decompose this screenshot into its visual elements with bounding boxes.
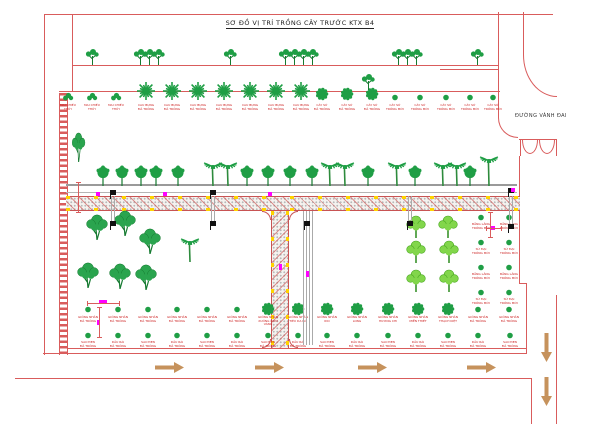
right-road-edge <box>556 295 557 424</box>
plant-label: CAU BỤNGĐÃ TRỒNG <box>211 104 237 111</box>
magenta-marker <box>306 271 309 277</box>
gate-arch-1 <box>522 140 538 154</box>
small-tree-tree-icon <box>304 48 321 65</box>
plant-label: BẰNG LĂNGTRỒNG MỚI <box>496 273 522 280</box>
star-tree-icon <box>214 81 234 101</box>
round-tree-icon <box>170 165 186 186</box>
dimension-line <box>486 228 501 229</box>
magenta-marker <box>96 192 100 196</box>
dimension-line <box>87 303 119 304</box>
plant-label: CÂY SỨTRỒNG MỚI <box>433 104 459 111</box>
plant-label: CAU BỤNGĐÃ TRỒNG <box>237 104 263 111</box>
traffic-arrow-right <box>255 362 285 373</box>
plant-label: GIỐNG NHÃNHƯƠNG CHI <box>375 316 401 323</box>
dimension-line <box>99 307 100 337</box>
inner-vline <box>72 14 73 92</box>
plant-dot-icon <box>295 332 302 339</box>
plant-dot-icon <box>354 332 361 339</box>
plant-label: CAU BỤNGĐÃ TRỒNG <box>133 104 159 111</box>
plant-label: CAU BỤNGĐÃ TRỒNG <box>263 104 289 111</box>
plant-dot-icon <box>324 332 331 339</box>
plant-label: SỨ ĐẠITRỒNG MỚI <box>468 248 494 255</box>
plant-label: SỨ ĐẠITRỒNG MỚI <box>496 248 522 255</box>
plant-dot-icon <box>507 332 514 339</box>
dim-tick <box>488 212 493 213</box>
striped-wall <box>59 93 68 355</box>
plant-label: GIỐNG NHÃNĐÃ TRỒNG <box>496 316 522 323</box>
right-border-lower <box>526 283 527 353</box>
upper-hline <box>72 65 498 66</box>
dim-tick <box>486 226 487 231</box>
plant-label: DẦU RÁIĐÃ TRỒNG <box>285 341 311 348</box>
road-label: ĐƯỜNG VÀNH ĐAI <box>515 113 567 119</box>
post-line <box>111 196 115 221</box>
plant-label: GIỐNG NHÃNTIÊU DA BÒ <box>285 316 311 323</box>
plant-dot-icon <box>506 239 513 246</box>
plant-dot-icon <box>490 94 497 101</box>
lgreen-tree-icon <box>406 268 427 292</box>
small-tree-tree-icon <box>360 73 377 90</box>
fluffy-tree-icon <box>340 87 354 101</box>
plant-label: GIỐNG NHÃNLONG <box>344 316 370 323</box>
plant-dot-icon <box>506 306 513 313</box>
round-tree-icon <box>282 165 298 186</box>
plant-label: BẰNG LĂNGTRỒNG MỚI <box>468 273 494 280</box>
palm-tree-icon <box>386 160 408 186</box>
lgreen-tree-icon <box>406 239 427 263</box>
bush-tree-icon <box>63 92 74 101</box>
plant-label: GIỐNG NHÃNTHẠCH KIỆT <box>435 316 461 323</box>
plant-label: GIỐNG NHÃNĐÃ TRỒNG <box>135 316 161 323</box>
curve-b <box>523 55 557 97</box>
plant-dot-icon <box>417 94 424 101</box>
star-tree-icon <box>162 81 182 101</box>
palm-tree-icon <box>179 236 201 262</box>
dim-tick <box>97 307 102 308</box>
small-tree-tree-icon <box>84 48 101 65</box>
dim-tick <box>76 182 81 183</box>
plant-dot-icon <box>265 332 272 339</box>
plant-dot-icon <box>475 332 482 339</box>
dim-tick <box>76 212 81 213</box>
plant-dot-icon <box>467 94 474 101</box>
traffic-arrow-right <box>155 362 185 373</box>
small-tree-tree-icon <box>222 48 239 65</box>
dimension-line <box>78 182 79 212</box>
gate-post-left <box>520 139 521 156</box>
plant-label: SAO ĐENĐÃ TRỒNG <box>194 341 220 348</box>
big-tree-icon <box>133 262 159 290</box>
right-vline-b <box>523 12 524 55</box>
fluffy-tree-icon <box>381 302 395 316</box>
plant-label: GIỐNG NHÃNXUỒNG CƠM VÀNG <box>255 316 281 327</box>
fluffy-tree-icon <box>320 302 334 316</box>
plant-label: MAI CHIẾUTHỦY <box>55 104 81 111</box>
plant-dot-icon <box>85 306 92 313</box>
small-tree-tree-icon <box>408 48 425 65</box>
plant-dot-icon <box>475 306 482 313</box>
right-border-upper <box>519 156 520 283</box>
palm-tree-icon <box>217 160 239 186</box>
plant-dot-icon <box>415 332 422 339</box>
plant-dot-icon <box>445 332 452 339</box>
plant-dot-icon <box>478 289 485 296</box>
lamp-post-icon <box>210 221 216 226</box>
gate-arch-2 <box>539 140 555 154</box>
lamp-post-icon <box>304 221 310 226</box>
traffic-arrow-down <box>541 333 552 363</box>
plant-dot-icon <box>85 332 92 339</box>
curve-a <box>498 118 518 138</box>
yellow-dash-left <box>271 211 274 348</box>
plant-label: CÂY SỨTRỒNG MỚI <box>480 104 506 111</box>
plant-label: SỨ ĐẠITRỒNG MỚI <box>468 298 494 305</box>
round-tree-icon <box>95 165 111 186</box>
lgreen-tree-icon <box>439 239 460 263</box>
plant-label: CÂY SỨTRỒNG MỚI <box>382 104 408 111</box>
fluffy-tree-icon <box>261 302 275 316</box>
round-tree-icon <box>407 165 423 186</box>
border-top <box>44 14 553 15</box>
dim-tick <box>87 301 88 306</box>
post-line <box>211 196 215 221</box>
round-tree-icon <box>114 165 130 186</box>
small-tree-tree-icon <box>150 48 167 65</box>
fluffy-tree-icon <box>315 87 329 101</box>
border-left <box>44 14 45 355</box>
plant-dot-icon <box>145 306 152 313</box>
star-tree-icon <box>188 81 208 101</box>
dimension-line <box>490 212 491 237</box>
star-tree-icon <box>291 81 311 101</box>
gate-post-right <box>556 139 557 156</box>
tallpalm-tree-icon <box>478 154 500 186</box>
star-tree-icon <box>240 81 260 101</box>
bush-tree-icon <box>111 92 122 101</box>
magenta-marker <box>163 192 167 196</box>
traffic-arrow-right <box>358 362 388 373</box>
plant-dot-icon <box>478 264 485 271</box>
big-tree-icon <box>107 261 133 289</box>
palm-tree-icon <box>446 160 468 186</box>
plant-dot-icon <box>385 332 392 339</box>
plant-dot-icon <box>115 332 122 339</box>
tall-tree-icon <box>71 130 86 162</box>
dim-tick <box>119 301 120 306</box>
magenta-marker <box>511 188 515 192</box>
fluffy-tree-icon <box>411 302 425 316</box>
road-edge-1 <box>43 353 527 354</box>
plant-label: DẦU RÁIĐÃ TRỒNG <box>164 341 190 348</box>
post-line <box>303 211 307 345</box>
plant-dot-icon <box>234 306 241 313</box>
main-road-line-2 <box>66 192 517 193</box>
palm-tree-icon <box>334 160 356 186</box>
round-tree-icon <box>260 165 276 186</box>
dim-tick <box>488 237 493 238</box>
plant-label: DẦU RÁIĐÃ TRỒNG <box>105 341 131 348</box>
plant-dot-icon <box>204 306 211 313</box>
plant-label: SỨ ĐẠITRỒNG MỚI <box>496 298 522 305</box>
lamp-post-icon <box>110 221 116 226</box>
plant-label: SAO ĐENĐÃ TRỒNG <box>497 341 523 348</box>
plant-dot-icon <box>392 94 399 101</box>
plant-dot-icon <box>174 332 181 339</box>
plant-label: SAO ĐENĐÃ TRỒNG <box>314 341 340 348</box>
star-tree-icon <box>266 81 286 101</box>
plant-label: GIỐNG NHÃNĐÃ TRỒNG <box>164 316 190 323</box>
plant-label: GIỐNG NHÃNĐÃ TRỒNG <box>105 316 131 323</box>
plant-label: CÂY SỨĐÃ TRỒNG <box>309 104 335 111</box>
lamp-post-icon <box>508 224 514 229</box>
magenta-marker <box>268 192 272 196</box>
plant-dot-icon <box>506 289 513 296</box>
plant-label: GIỐNG NHÃNMIỀN THIẾT <box>405 316 431 323</box>
road-edge-2 <box>15 378 532 379</box>
small-tree-tree-icon <box>469 48 486 65</box>
big-tree-icon <box>84 212 110 240</box>
plant-dot-icon <box>174 306 181 313</box>
plant-dot-icon <box>443 94 450 101</box>
plant-label: DẦU RÁIĐÃ TRỒNG <box>344 341 370 348</box>
plant-label: SAO ĐENĐÃ TRỒNG <box>255 341 281 348</box>
yellow-dash-right <box>286 211 289 348</box>
dim-tick <box>501 226 502 231</box>
upper-hline-2 <box>440 69 498 70</box>
lgreen-tree-icon <box>439 268 460 292</box>
plant-dot-icon <box>145 332 152 339</box>
lgreen-tree-icon <box>438 214 459 238</box>
lamp-post-icon <box>210 190 216 195</box>
traffic-arrow-right <box>467 362 497 373</box>
plant-label: DẦU RÁIĐÃ TRỒNG <box>224 341 250 348</box>
magenta-marker <box>279 264 282 270</box>
round-tree-icon <box>148 165 164 186</box>
plant-dot-icon <box>204 332 211 339</box>
plant-label: SAO ĐENĐÃ TRỒNG <box>75 341 101 348</box>
plant-label: GIỐNG NHÃNIDO <box>314 316 340 323</box>
fluffy-tree-icon <box>350 302 364 316</box>
plant-dot-icon <box>234 332 241 339</box>
lamp-post-icon <box>110 190 116 195</box>
plant-label: CÂY SỨĐÃ TRỒNG <box>334 104 360 111</box>
lamp-post-icon <box>407 221 413 226</box>
fluffy-tree-icon <box>441 302 455 316</box>
plant-label: SAO ĐENĐÃ TRỒNG <box>375 341 401 348</box>
round-tree-icon <box>239 165 255 186</box>
round-tree-icon <box>133 165 149 186</box>
big-tree-icon <box>75 260 101 288</box>
site-plan-canvas: SƠ ĐỒ VỊ TRÍ TRỒNG CÂY TRƯỚC KTX B4 ĐƯỜN… <box>0 0 600 424</box>
post-line <box>509 196 513 224</box>
page-title: SƠ ĐỒ VỊ TRÍ TRỒNG CÂY TRƯỚC KTX B4 <box>0 19 600 27</box>
star-tree-icon <box>136 81 156 101</box>
plant-dot-icon <box>478 239 485 246</box>
road-corner-v <box>531 378 532 424</box>
plant-label: DẦU RÁIĐÃ TRỒNG <box>465 341 491 348</box>
plant-label: GIỐNG NHÃNĐÃ TRỒNG <box>194 316 220 323</box>
post-line <box>309 211 313 345</box>
plant-label: SAO ĐENĐÃ TRỒNG <box>435 341 461 348</box>
plant-label: SAO ĐENĐÃ TRỒNG <box>135 341 161 348</box>
dim-tick <box>97 337 102 338</box>
round-tree-icon <box>304 165 320 186</box>
yellow-dash-top <box>66 196 520 199</box>
plant-label: MAI CHIẾUTHỦY <box>103 104 129 111</box>
plant-label: MAI CHIẾUTHỦY <box>79 104 105 111</box>
traffic-arrow-down <box>541 377 552 407</box>
plant-label: DẦU RÁIĐÃ TRỒNG <box>405 341 431 348</box>
plant-label: GIỐNG NHÃNĐÃ TRỒNG <box>224 316 250 323</box>
flare-tr <box>289 211 298 220</box>
post-line <box>408 196 412 221</box>
plant-label: CAU BỤNGĐÃ TRỒNG <box>159 104 185 111</box>
bush-tree-icon <box>87 92 98 101</box>
plant-dot-icon <box>115 306 122 313</box>
plant-label: GIỐNG NHÃNĐÃ TRỒNG <box>465 316 491 323</box>
plant-label: CAU BỤNGĐÃ TRỒNG <box>185 104 211 111</box>
flare-tl <box>262 211 271 220</box>
plant-label: CÂY SỨTRỒNG MỚI <box>407 104 433 111</box>
plant-dot-icon <box>478 214 485 221</box>
round-tree-icon <box>360 165 376 186</box>
big-tree-icon <box>137 226 163 254</box>
plant-dot-icon <box>506 264 513 271</box>
